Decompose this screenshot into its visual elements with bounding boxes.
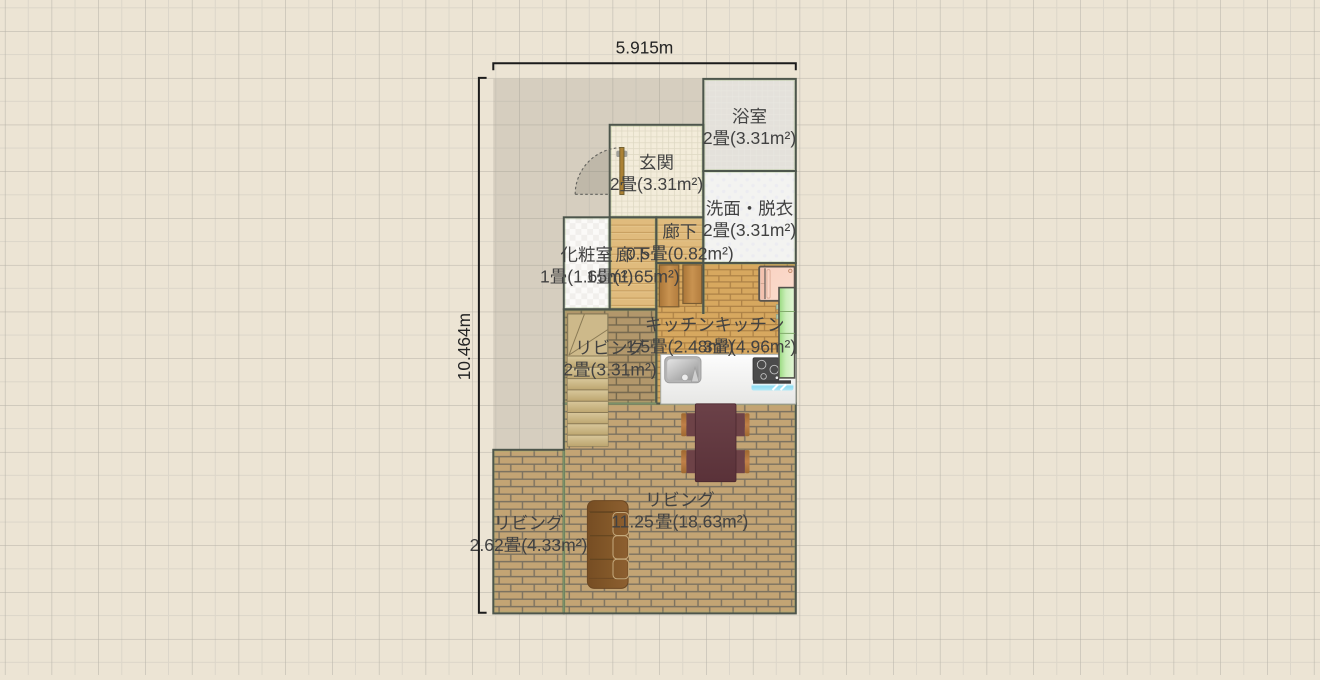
svg-text:2: 2 <box>610 174 620 194</box>
svg-text:1: 1 <box>586 267 596 287</box>
svg-text:1: 1 <box>540 267 550 287</box>
svg-text:3: 3 <box>703 336 713 356</box>
svg-text:(4.96m²): (4.96m²) <box>730 336 796 356</box>
svg-text:2: 2 <box>703 220 713 240</box>
svg-text:(18.63m²): (18.63m²) <box>673 512 749 532</box>
svg-text:(0.82m²): (0.82m²) <box>668 243 734 263</box>
svg-text:11.25: 11.25 <box>611 512 654 532</box>
svg-text:1.5: 1.5 <box>626 336 650 356</box>
svg-text:(3.31m²): (3.31m²) <box>730 128 796 148</box>
svg-text:(3.31m²): (3.31m²) <box>637 174 703 194</box>
svg-text:2: 2 <box>703 128 713 148</box>
svg-text:(1.65m²): (1.65m²) <box>614 267 680 287</box>
svg-text:(3.31m²): (3.31m²) <box>730 220 796 240</box>
svg-text:0.5: 0.5 <box>626 243 650 263</box>
svg-text:5.915m: 5.915m <box>616 38 674 58</box>
svg-text:(4.33m²): (4.33m²) <box>521 535 587 555</box>
svg-text:10.464m: 10.464m <box>454 313 474 380</box>
svg-text:(3.31m²): (3.31m²) <box>591 360 657 380</box>
svg-text:2.62: 2.62 <box>470 535 504 555</box>
svg-text:2: 2 <box>563 360 573 380</box>
